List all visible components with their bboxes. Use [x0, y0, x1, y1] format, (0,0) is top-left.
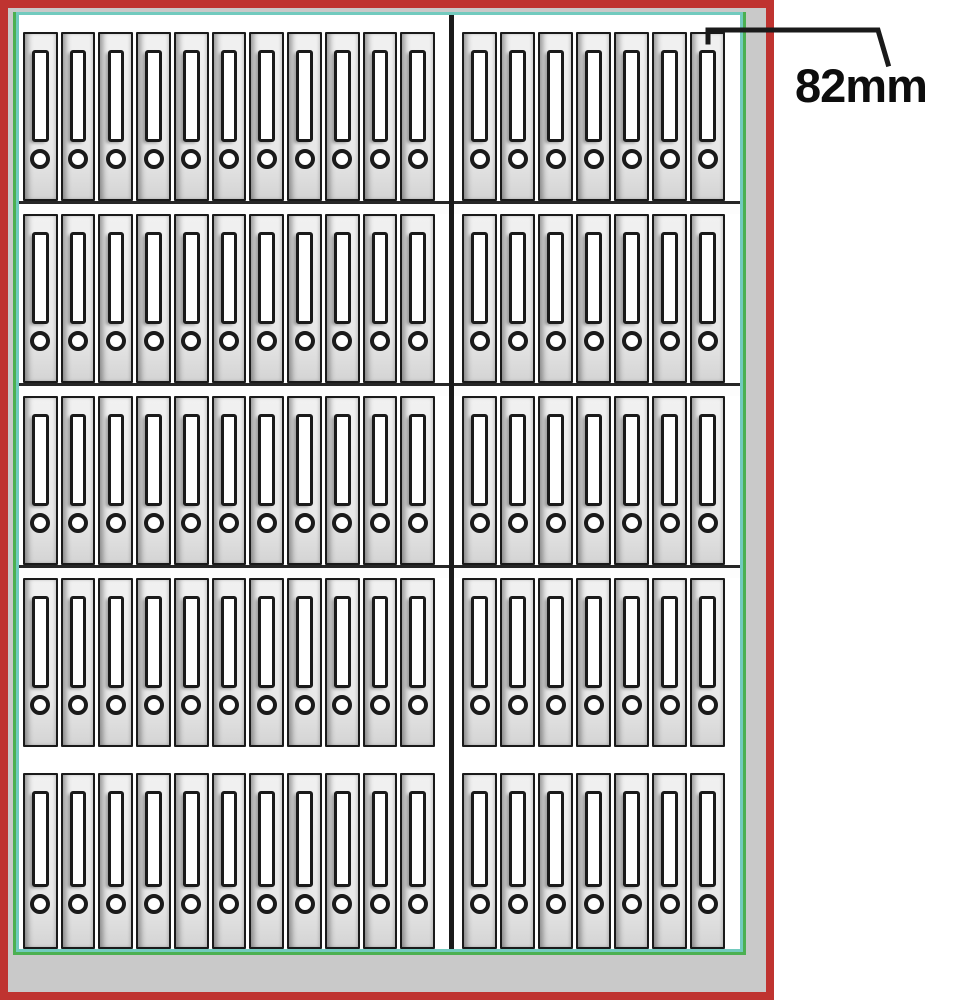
binder-label-window: [183, 414, 200, 506]
binder-grip-hole: [660, 894, 680, 914]
binder-grip-hole: [68, 695, 88, 715]
binder-grip-hole: [295, 695, 315, 715]
binder-grip-hole: [660, 331, 680, 351]
binder-grip-hole: [660, 149, 680, 169]
binder-label-window: [409, 791, 426, 887]
binder: [174, 396, 209, 565]
binder: [61, 578, 96, 747]
binder-label-window: [547, 414, 564, 506]
binder: [400, 396, 435, 565]
binder-group-right: [462, 578, 725, 747]
binder: [212, 32, 247, 201]
binder-group-right: [462, 396, 725, 565]
shelf-row: [19, 773, 740, 949]
binder-grip-hole: [508, 149, 528, 169]
binder-label-window: [585, 414, 602, 506]
binder: [325, 32, 360, 201]
binder-group-left: [23, 773, 435, 949]
binder-label-window: [145, 414, 162, 506]
cabinet-frame-teal: [16, 12, 743, 952]
binder: [212, 396, 247, 565]
binder: [500, 773, 535, 949]
binder-grip-hole: [219, 894, 239, 914]
binder-grip-hole: [508, 331, 528, 351]
binder-label-window: [108, 596, 125, 688]
binder-label-window: [108, 414, 125, 506]
binder: [538, 578, 573, 747]
binder-label-window: [221, 232, 238, 324]
binder: [690, 214, 725, 383]
binder-label-window: [471, 596, 488, 688]
binder-grip-hole: [181, 513, 201, 533]
binder-label-window: [661, 414, 678, 506]
binder-group-left: [23, 578, 435, 747]
binder: [23, 396, 58, 565]
binder-label-window: [409, 232, 426, 324]
binder: [614, 214, 649, 383]
shelf-row: [19, 32, 740, 201]
binder-label-window: [509, 596, 526, 688]
binder: [249, 214, 284, 383]
binder-grip-hole: [622, 695, 642, 715]
binder-grip-hole: [257, 149, 277, 169]
binder: [538, 773, 573, 949]
binder: [287, 578, 322, 747]
binder-grip-hole: [408, 331, 428, 351]
binder: [325, 396, 360, 565]
binder-label-window: [296, 596, 313, 688]
binder-label-window: [145, 50, 162, 142]
binder-label-window: [258, 232, 275, 324]
binder-grip-hole: [219, 331, 239, 351]
binder-label-window: [32, 596, 49, 688]
binder: [212, 773, 247, 949]
binder-group-left: [23, 214, 435, 383]
binder-grip-hole: [370, 331, 390, 351]
binder-grip-hole: [68, 513, 88, 533]
binder-grip-hole: [68, 331, 88, 351]
binder: [174, 32, 209, 201]
binder: [538, 214, 573, 383]
binder-grip-hole: [408, 695, 428, 715]
binder-label-window: [108, 50, 125, 142]
binder-label-window: [221, 50, 238, 142]
binder-grip-hole: [332, 149, 352, 169]
binder-grip-hole: [295, 894, 315, 914]
dimension-label: 82mm: [795, 58, 927, 113]
binder-grip-hole: [698, 695, 718, 715]
binder-label-window: [699, 791, 716, 887]
binder: [174, 214, 209, 383]
binder-label-window: [547, 50, 564, 142]
binder: [325, 578, 360, 747]
binder-grip-hole: [660, 513, 680, 533]
binder: [98, 578, 133, 747]
binder: [249, 396, 284, 565]
binder-grip-hole: [30, 695, 50, 715]
binder-label-window: [258, 596, 275, 688]
binder-grip-hole: [546, 695, 566, 715]
binder: [325, 214, 360, 383]
binder-grip-hole: [546, 894, 566, 914]
shelf-row: [19, 396, 740, 565]
binder-grip-hole: [332, 513, 352, 533]
binder-label-window: [623, 791, 640, 887]
binder-grip-hole: [144, 513, 164, 533]
binder: [287, 32, 322, 201]
binder-grip-hole: [181, 894, 201, 914]
binder-label-window: [145, 232, 162, 324]
binder-group-right: [462, 214, 725, 383]
binder: [576, 32, 611, 201]
binder: [98, 396, 133, 565]
binder: [538, 32, 573, 201]
binder-grip-hole: [219, 513, 239, 533]
binder-label-window: [409, 50, 426, 142]
binder: [363, 773, 398, 949]
binder: [652, 32, 687, 201]
binder: [400, 214, 435, 383]
binder-grip-hole: [698, 331, 718, 351]
binder-label-window: [258, 414, 275, 506]
binder: [614, 32, 649, 201]
binder: [462, 773, 497, 949]
binder-label-window: [471, 50, 488, 142]
shelf-rows: [19, 15, 740, 949]
binder-grip-hole: [257, 695, 277, 715]
binder-label-window: [334, 50, 351, 142]
binder-label-window: [585, 232, 602, 324]
binder-label-window: [509, 791, 526, 887]
binder: [23, 773, 58, 949]
binder: [287, 214, 322, 383]
binder: [325, 773, 360, 949]
binder-label-window: [471, 232, 488, 324]
binder-label-window: [334, 414, 351, 506]
binder-label-window: [32, 791, 49, 887]
binder: [400, 32, 435, 201]
binder: [136, 32, 171, 201]
binder-label-window: [183, 791, 200, 887]
binder: [98, 32, 133, 201]
binder-grip-hole: [30, 894, 50, 914]
binder-label-window: [661, 596, 678, 688]
binder-group-right: [462, 32, 725, 201]
diagram-canvas: 82mm: [0, 0, 956, 1000]
binder-label-window: [585, 596, 602, 688]
shelf-row: [19, 214, 740, 383]
binder-label-window: [183, 596, 200, 688]
binder: [400, 773, 435, 949]
binder-grip-hole: [295, 149, 315, 169]
binder-label-window: [108, 232, 125, 324]
binder: [174, 578, 209, 747]
binder-label-window: [221, 414, 238, 506]
binder-label-window: [108, 791, 125, 887]
binder: [363, 214, 398, 383]
binder: [462, 396, 497, 565]
binder-grip-hole: [698, 149, 718, 169]
binder-label-window: [699, 232, 716, 324]
binder: [576, 773, 611, 949]
binder-label-window: [547, 596, 564, 688]
binder: [61, 32, 96, 201]
binder-label-window: [585, 50, 602, 142]
binder-label-window: [699, 596, 716, 688]
binder-label-window: [699, 414, 716, 506]
shelf-board: [19, 201, 740, 214]
binder-grip-hole: [332, 695, 352, 715]
binder-label-window: [70, 50, 87, 142]
binder-label-window: [509, 232, 526, 324]
binder-grip-hole: [470, 331, 490, 351]
bottom-row-gap: [19, 747, 740, 773]
binder-grip-hole: [68, 149, 88, 169]
binder-grip-hole: [30, 149, 50, 169]
binder: [576, 396, 611, 565]
binder-label-window: [183, 50, 200, 142]
shelf-board: [19, 383, 740, 396]
binder-grip-hole: [584, 894, 604, 914]
binder-label-window: [32, 414, 49, 506]
binder-label-window: [221, 596, 238, 688]
binder-grip-hole: [370, 695, 390, 715]
binder: [500, 578, 535, 747]
binder: [249, 32, 284, 201]
center-divider: [449, 15, 454, 949]
binder-label-window: [471, 414, 488, 506]
binder-grip-hole: [584, 149, 604, 169]
binder-grip-hole: [144, 695, 164, 715]
binder-grip-hole: [144, 149, 164, 169]
binder-grip-hole: [408, 149, 428, 169]
binder-grip-hole: [370, 894, 390, 914]
binder-label-window: [70, 791, 87, 887]
binder: [98, 214, 133, 383]
binder-group-right: [462, 773, 725, 949]
binder-label-window: [334, 791, 351, 887]
binder-label-window: [547, 791, 564, 887]
binder: [652, 214, 687, 383]
binder-grip-hole: [470, 513, 490, 533]
shelf-row: [19, 578, 740, 747]
binder: [614, 773, 649, 949]
binder-label-window: [258, 50, 275, 142]
binder: [136, 214, 171, 383]
binder: [462, 214, 497, 383]
binder-label-window: [661, 232, 678, 324]
binder-label-window: [623, 50, 640, 142]
binder-grip-hole: [30, 331, 50, 351]
binder-grip-hole: [257, 331, 277, 351]
binder: [576, 214, 611, 383]
binder: [212, 214, 247, 383]
binder-label-window: [623, 596, 640, 688]
binder-label-window: [296, 791, 313, 887]
binder-grip-hole: [470, 149, 490, 169]
binder-label-window: [372, 791, 389, 887]
binder-grip-hole: [370, 513, 390, 533]
binder: [212, 578, 247, 747]
binder-label-window: [409, 414, 426, 506]
binder-grip-hole: [698, 894, 718, 914]
binder-label-window: [334, 596, 351, 688]
binder-grip-hole: [408, 513, 428, 533]
binder-label-window: [70, 232, 87, 324]
binder: [652, 396, 687, 565]
binder-grip-hole: [106, 331, 126, 351]
binder: [363, 578, 398, 747]
binder: [287, 396, 322, 565]
binder-grip-hole: [622, 513, 642, 533]
binder-label-window: [623, 232, 640, 324]
binder-label-window: [70, 414, 87, 506]
binder-grip-hole: [546, 149, 566, 169]
binder-grip-hole: [332, 331, 352, 351]
binder: [249, 578, 284, 747]
binder: [538, 396, 573, 565]
binder-label-window: [509, 414, 526, 506]
binder-grip-hole: [257, 894, 277, 914]
binder-grip-hole: [181, 695, 201, 715]
binder: [249, 773, 284, 949]
binder-label-window: [145, 791, 162, 887]
shelf-board: [19, 565, 740, 578]
binder-grip-hole: [470, 695, 490, 715]
binder: [174, 773, 209, 949]
binder-grip-hole: [181, 331, 201, 351]
binder-grip-hole: [219, 149, 239, 169]
binder-grip-hole: [508, 695, 528, 715]
binder-grip-hole: [106, 894, 126, 914]
binder-grip-hole: [508, 513, 528, 533]
binder: [652, 578, 687, 747]
binder-label-window: [32, 232, 49, 324]
binder-grip-hole: [106, 149, 126, 169]
binder: [61, 214, 96, 383]
binder-grip-hole: [584, 513, 604, 533]
binder-label-window: [661, 791, 678, 887]
binder: [23, 32, 58, 201]
binder-grip-hole: [106, 695, 126, 715]
binder-label-window: [372, 414, 389, 506]
binder-grip-hole: [257, 513, 277, 533]
binder: [23, 214, 58, 383]
binder: [690, 578, 725, 747]
binder-label-window: [623, 414, 640, 506]
binder: [500, 214, 535, 383]
binder-label-window: [32, 50, 49, 142]
binder-grip-hole: [622, 894, 642, 914]
binder: [462, 578, 497, 747]
binder: [136, 773, 171, 949]
binder-label-window: [221, 791, 238, 887]
binder: [287, 773, 322, 949]
binder: [614, 396, 649, 565]
binder-grip-hole: [144, 894, 164, 914]
cabinet-interior: [19, 15, 740, 949]
binder-grip-hole: [295, 331, 315, 351]
binder: [576, 578, 611, 747]
binder-label-window: [70, 596, 87, 688]
binder-grip-hole: [660, 695, 680, 715]
binder-grip-hole: [470, 894, 490, 914]
binder-label-window: [372, 596, 389, 688]
binder-label-window: [296, 414, 313, 506]
binder: [363, 396, 398, 565]
binder-group-left: [23, 396, 435, 565]
binder: [136, 396, 171, 565]
binder-grip-hole: [698, 513, 718, 533]
binder-grip-hole: [144, 331, 164, 351]
binder-grip-hole: [68, 894, 88, 914]
binder-grip-hole: [546, 513, 566, 533]
binder-grip-hole: [181, 149, 201, 169]
binder: [500, 396, 535, 565]
binder-grip-hole: [508, 894, 528, 914]
binder-grip-hole: [546, 331, 566, 351]
cabinet-outline: [0, 0, 774, 1000]
binder-grip-hole: [622, 331, 642, 351]
binder-label-window: [661, 50, 678, 142]
binder-grip-hole: [584, 331, 604, 351]
binder: [614, 578, 649, 747]
binder-grip-hole: [332, 894, 352, 914]
binder: [23, 578, 58, 747]
binder-label-window: [183, 232, 200, 324]
binder-label-window: [409, 596, 426, 688]
binder-label-window: [145, 596, 162, 688]
binder-grip-hole: [370, 149, 390, 169]
binder-grip-hole: [408, 894, 428, 914]
binder-label-window: [296, 50, 313, 142]
binder-grip-hole: [219, 695, 239, 715]
binder-grip-hole: [622, 149, 642, 169]
binder: [462, 32, 497, 201]
binder: [136, 578, 171, 747]
binder-label-window: [258, 791, 275, 887]
binder: [61, 396, 96, 565]
binder: [98, 773, 133, 949]
binder: [400, 578, 435, 747]
binder-label-window: [585, 791, 602, 887]
binder: [690, 396, 725, 565]
binder: [652, 773, 687, 949]
binder: [690, 773, 725, 949]
binder-label-window: [547, 232, 564, 324]
binder-grip-hole: [295, 513, 315, 533]
binder: [61, 773, 96, 949]
binder-grip-hole: [106, 513, 126, 533]
binder-label-window: [334, 232, 351, 324]
binder-label-window: [509, 50, 526, 142]
binder-grip-hole: [584, 695, 604, 715]
binder-label-window: [372, 232, 389, 324]
binder-label-window: [296, 232, 313, 324]
binder-label-window: [471, 791, 488, 887]
binder: [363, 32, 398, 201]
cabinet-frame-green: [13, 12, 746, 955]
binder-grip-hole: [30, 513, 50, 533]
binder-label-window: [372, 50, 389, 142]
binder: [500, 32, 535, 201]
binder-group-left: [23, 32, 435, 201]
